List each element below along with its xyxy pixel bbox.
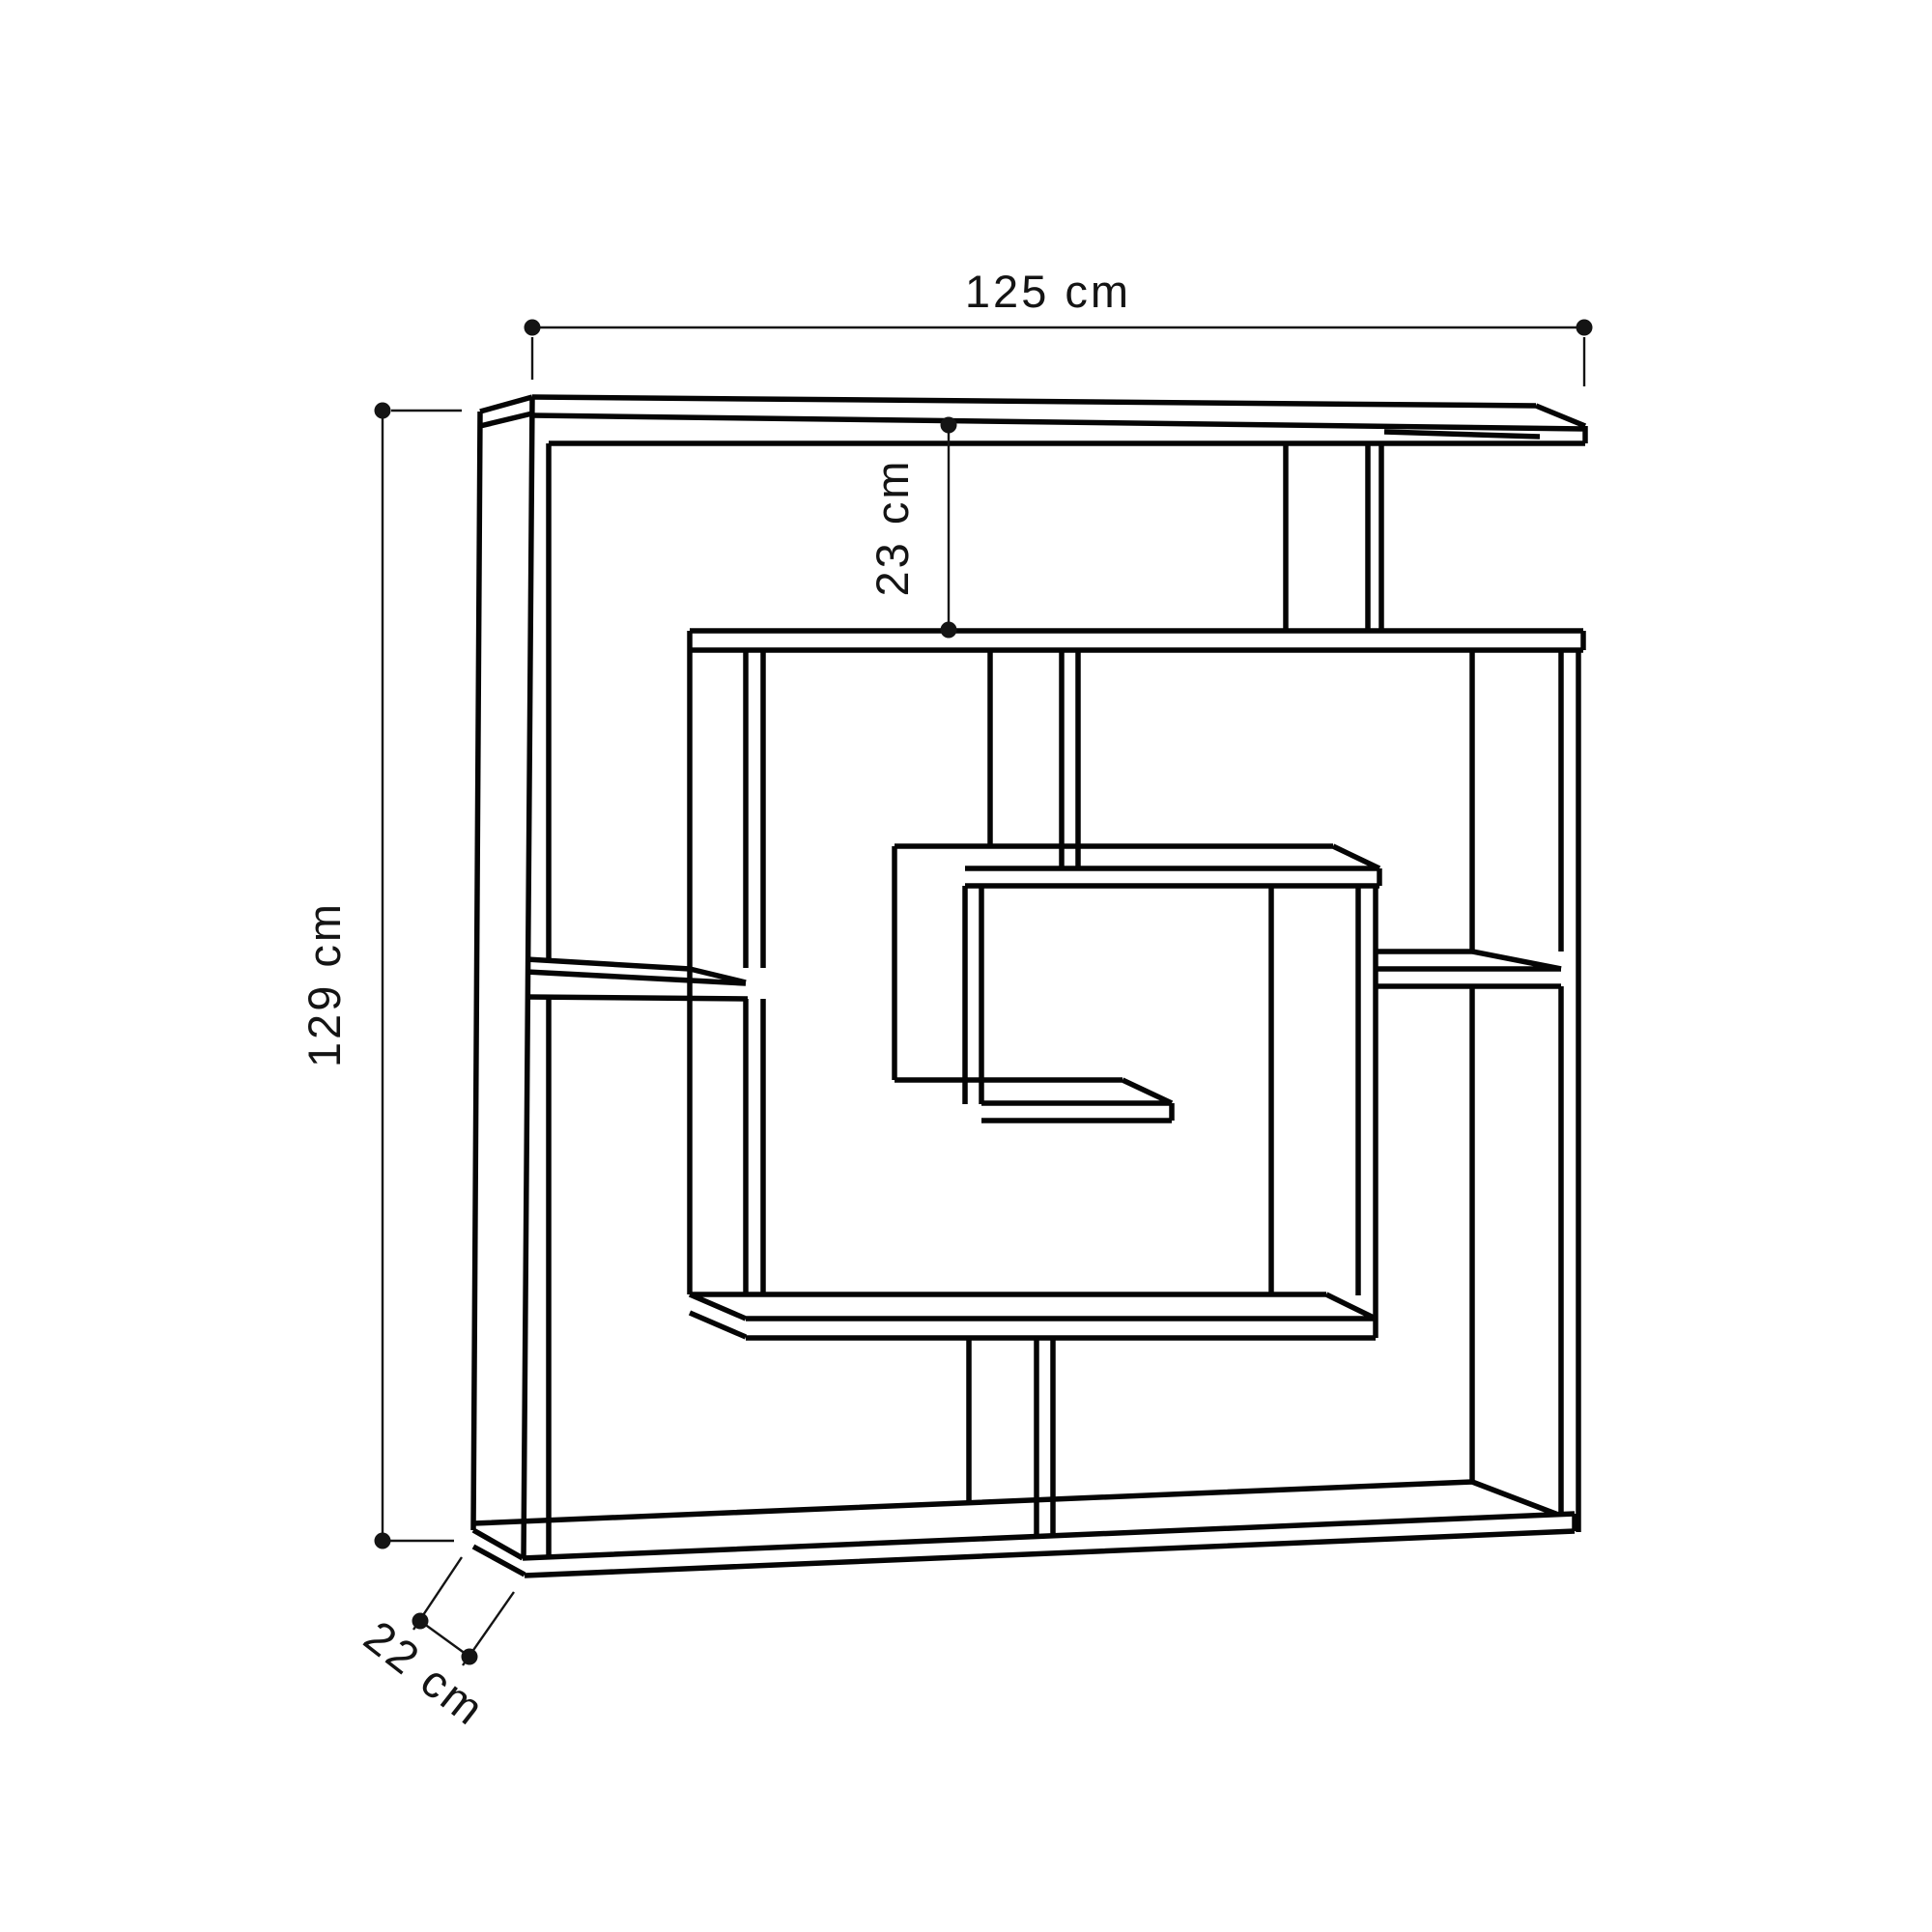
height-dimension-label: 129 cm — [298, 901, 350, 1067]
second-shelf-board — [690, 631, 1583, 650]
dimension-endpoint-dot — [462, 1649, 478, 1665]
dimension-endpoint-dot — [375, 1533, 391, 1549]
width-dimension: 125 cm — [525, 266, 1593, 386]
dimension-endpoint-dot — [375, 403, 391, 419]
top-shelf-board — [532, 397, 1585, 443]
width-dimension-label: 125 cm — [965, 266, 1131, 317]
dimension-endpoint-dot — [525, 320, 541, 336]
furniture-dimension-diagram: 125 cm 129 cm 23 cm 22 cm — [0, 0, 1932, 1932]
height-dimension-line — [383, 411, 462, 1541]
maze-left-panel — [690, 631, 763, 1296]
bookshelf-diagram-canvas: 125 cm 129 cm 23 cm 22 cm — [0, 0, 1932, 1932]
top-gap-dimension: 23 cm — [867, 417, 957, 639]
middle-divider-panel — [990, 650, 1078, 868]
maze-bottom-board — [690, 1294, 1376, 1338]
inner-return-shelf — [895, 1080, 1172, 1121]
inner-top-board — [895, 846, 1379, 886]
right-side-panel — [1472, 650, 1578, 1532]
left-side-panel — [473, 397, 549, 1575]
depth-dimension: 22 cm — [355, 1557, 514, 1736]
bottom-board — [473, 1482, 1575, 1576]
lower-divider-panel — [969, 1338, 1053, 1537]
height-dimension: 129 cm — [298, 403, 462, 1549]
top-gap-dimension-label: 23 cm — [867, 459, 918, 597]
left-side-shelf — [526, 959, 748, 999]
dimension-endpoint-dot — [941, 417, 957, 434]
dimension-endpoint-dot — [412, 1613, 429, 1630]
upper-divider-panel — [1286, 443, 1381, 631]
bookshelf-drawing — [473, 397, 1585, 1576]
dimension-endpoint-dot — [941, 622, 957, 639]
right-side-shelf — [1376, 952, 1561, 986]
dimension-endpoint-dot — [1577, 320, 1593, 336]
width-dimension-line — [532, 327, 1584, 386]
inner-right-panel — [1271, 887, 1376, 1319]
depth-dimension-label: 22 cm — [355, 1610, 496, 1736]
